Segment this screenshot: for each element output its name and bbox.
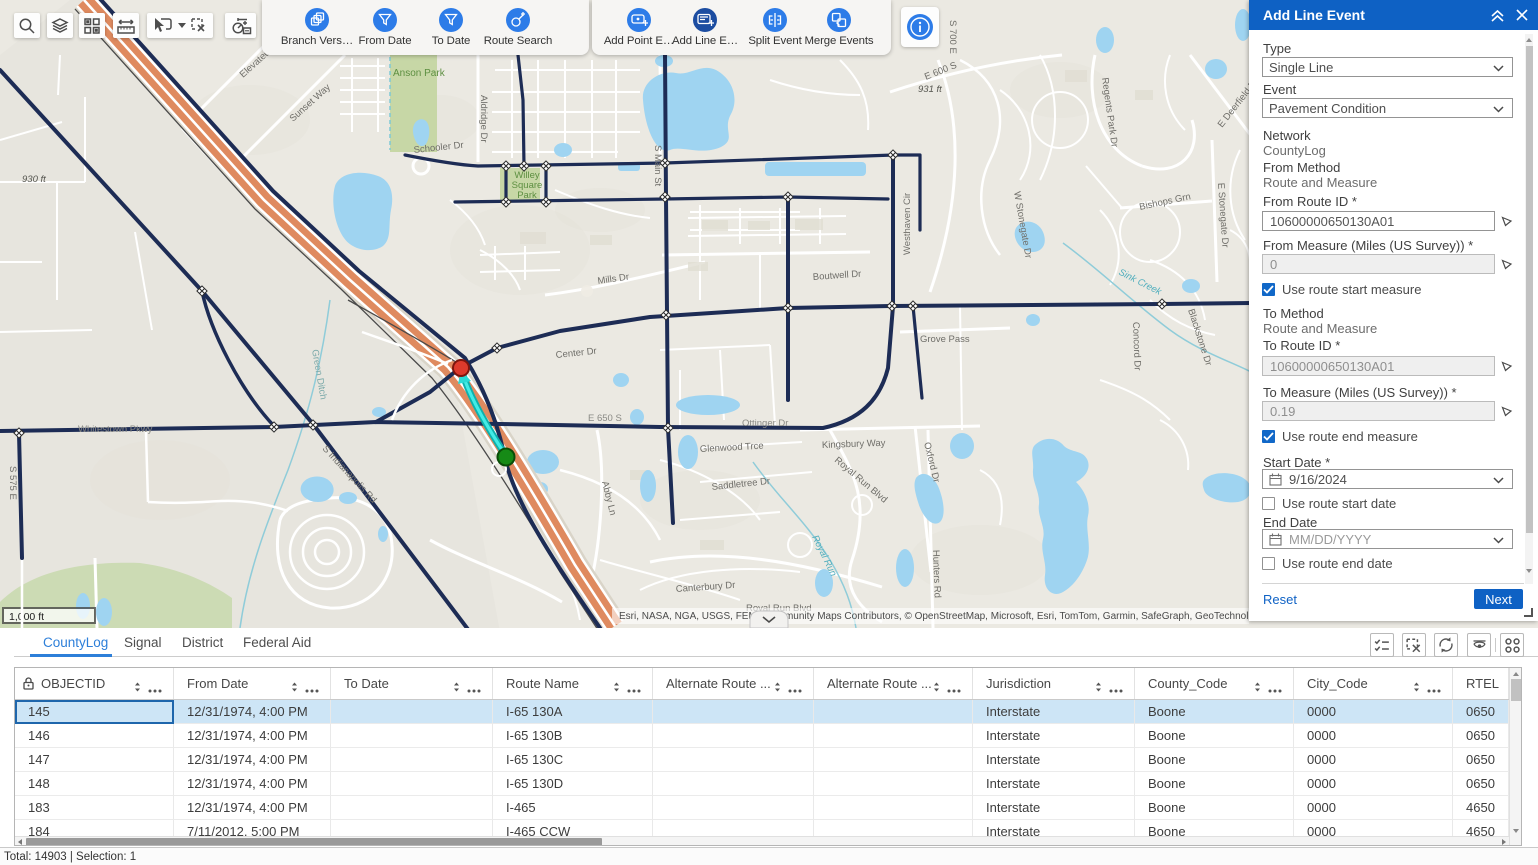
svg-text:Anson Park: Anson Park — [393, 68, 446, 79]
svg-text:Park: Park — [517, 190, 537, 201]
svg-text:Westhaven Cir: Westhaven Cir — [902, 193, 913, 255]
svg-text:Hunters Rd: Hunters Rd — [930, 550, 943, 598]
svg-text:S 700 E: S 700 E — [947, 20, 958, 54]
svg-text:S Main St: S Main St — [652, 145, 663, 187]
svg-text:Ottinger Dr: Ottinger Dr — [742, 418, 788, 429]
svg-text:Grove Pass: Grove Pass — [920, 334, 970, 345]
svg-text:Kingsbury Way: Kingsbury Way — [822, 438, 886, 451]
svg-text:Aldridge Dr: Aldridge Dr — [478, 95, 489, 143]
svg-text:E 650 S: E 650 S — [588, 413, 622, 424]
svg-text:Esri, NASA, NGA, USGS, FEMA |: Esri, NASA, NGA, USGS, FEMA | ..mmunity … — [619, 611, 1248, 622]
svg-text:1,000 ft: 1,000 ft — [9, 611, 44, 623]
svg-text:930 ft: 930 ft — [22, 174, 46, 185]
svg-text:931 ft: 931 ft — [918, 84, 942, 95]
svg-text:Concord Dr: Concord Dr — [1130, 322, 1143, 371]
svg-text:Whitestown Pkwy: Whitestown Pkwy — [78, 424, 153, 435]
svg-text:S 575 E: S 575 E — [7, 466, 18, 500]
